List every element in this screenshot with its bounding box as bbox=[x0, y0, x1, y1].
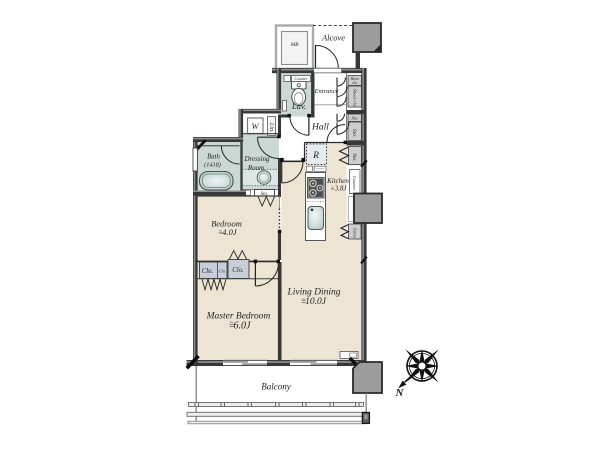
svg-text:Shoes clo.: Shoes clo. bbox=[352, 89, 357, 108]
svg-text:6.0J: 6.0J bbox=[234, 320, 252, 331]
svg-text:10.0J: 10.0J bbox=[305, 297, 327, 307]
svg-text:Futon: Futon bbox=[352, 227, 357, 238]
svg-text:N: N bbox=[395, 387, 405, 399]
svg-text:R: R bbox=[312, 151, 319, 161]
svg-text:Alcove: Alcove bbox=[321, 33, 345, 43]
svg-text:Entrance: Entrance bbox=[314, 88, 339, 95]
svg-text:Sto.: Sto. bbox=[261, 192, 269, 197]
svg-text:Kitchen: Kitchen bbox=[326, 177, 349, 185]
svg-text:Counter: Counter bbox=[294, 76, 308, 81]
svg-text:clo.: clo. bbox=[352, 81, 357, 85]
svg-text:Clo.: Clo. bbox=[202, 268, 214, 275]
svg-text:Sto.: Sto. bbox=[351, 153, 357, 161]
svg-text:MB: MB bbox=[290, 42, 300, 48]
svg-text:Hall: Hall bbox=[311, 123, 329, 133]
svg-text:Balcony: Balcony bbox=[261, 382, 291, 392]
svg-text:Living Dining: Living Dining bbox=[286, 288, 340, 298]
svg-text:Lin.: Lin. bbox=[268, 122, 274, 133]
svg-text:Lav.: Lav. bbox=[291, 101, 306, 111]
svg-text:Clo.: Clo. bbox=[219, 269, 226, 274]
svg-text:Dressing: Dressing bbox=[243, 155, 270, 163]
svg-text:Room: Room bbox=[247, 164, 264, 172]
svg-text:Counter: Counter bbox=[352, 176, 357, 191]
svg-text:(1418): (1418) bbox=[204, 162, 221, 169]
svg-text:3.8J: 3.8J bbox=[334, 186, 347, 193]
svg-text:Bath: Bath bbox=[207, 154, 220, 161]
svg-text:4.0J: 4.0J bbox=[222, 227, 238, 237]
svg-text:W: W bbox=[251, 121, 259, 131]
svg-text:Sto.: Sto. bbox=[351, 115, 358, 120]
svg-text:~: ~ bbox=[331, 185, 334, 190]
svg-text:Clo.: Clo. bbox=[232, 267, 244, 274]
svg-text:Sto.: Sto. bbox=[351, 129, 357, 137]
